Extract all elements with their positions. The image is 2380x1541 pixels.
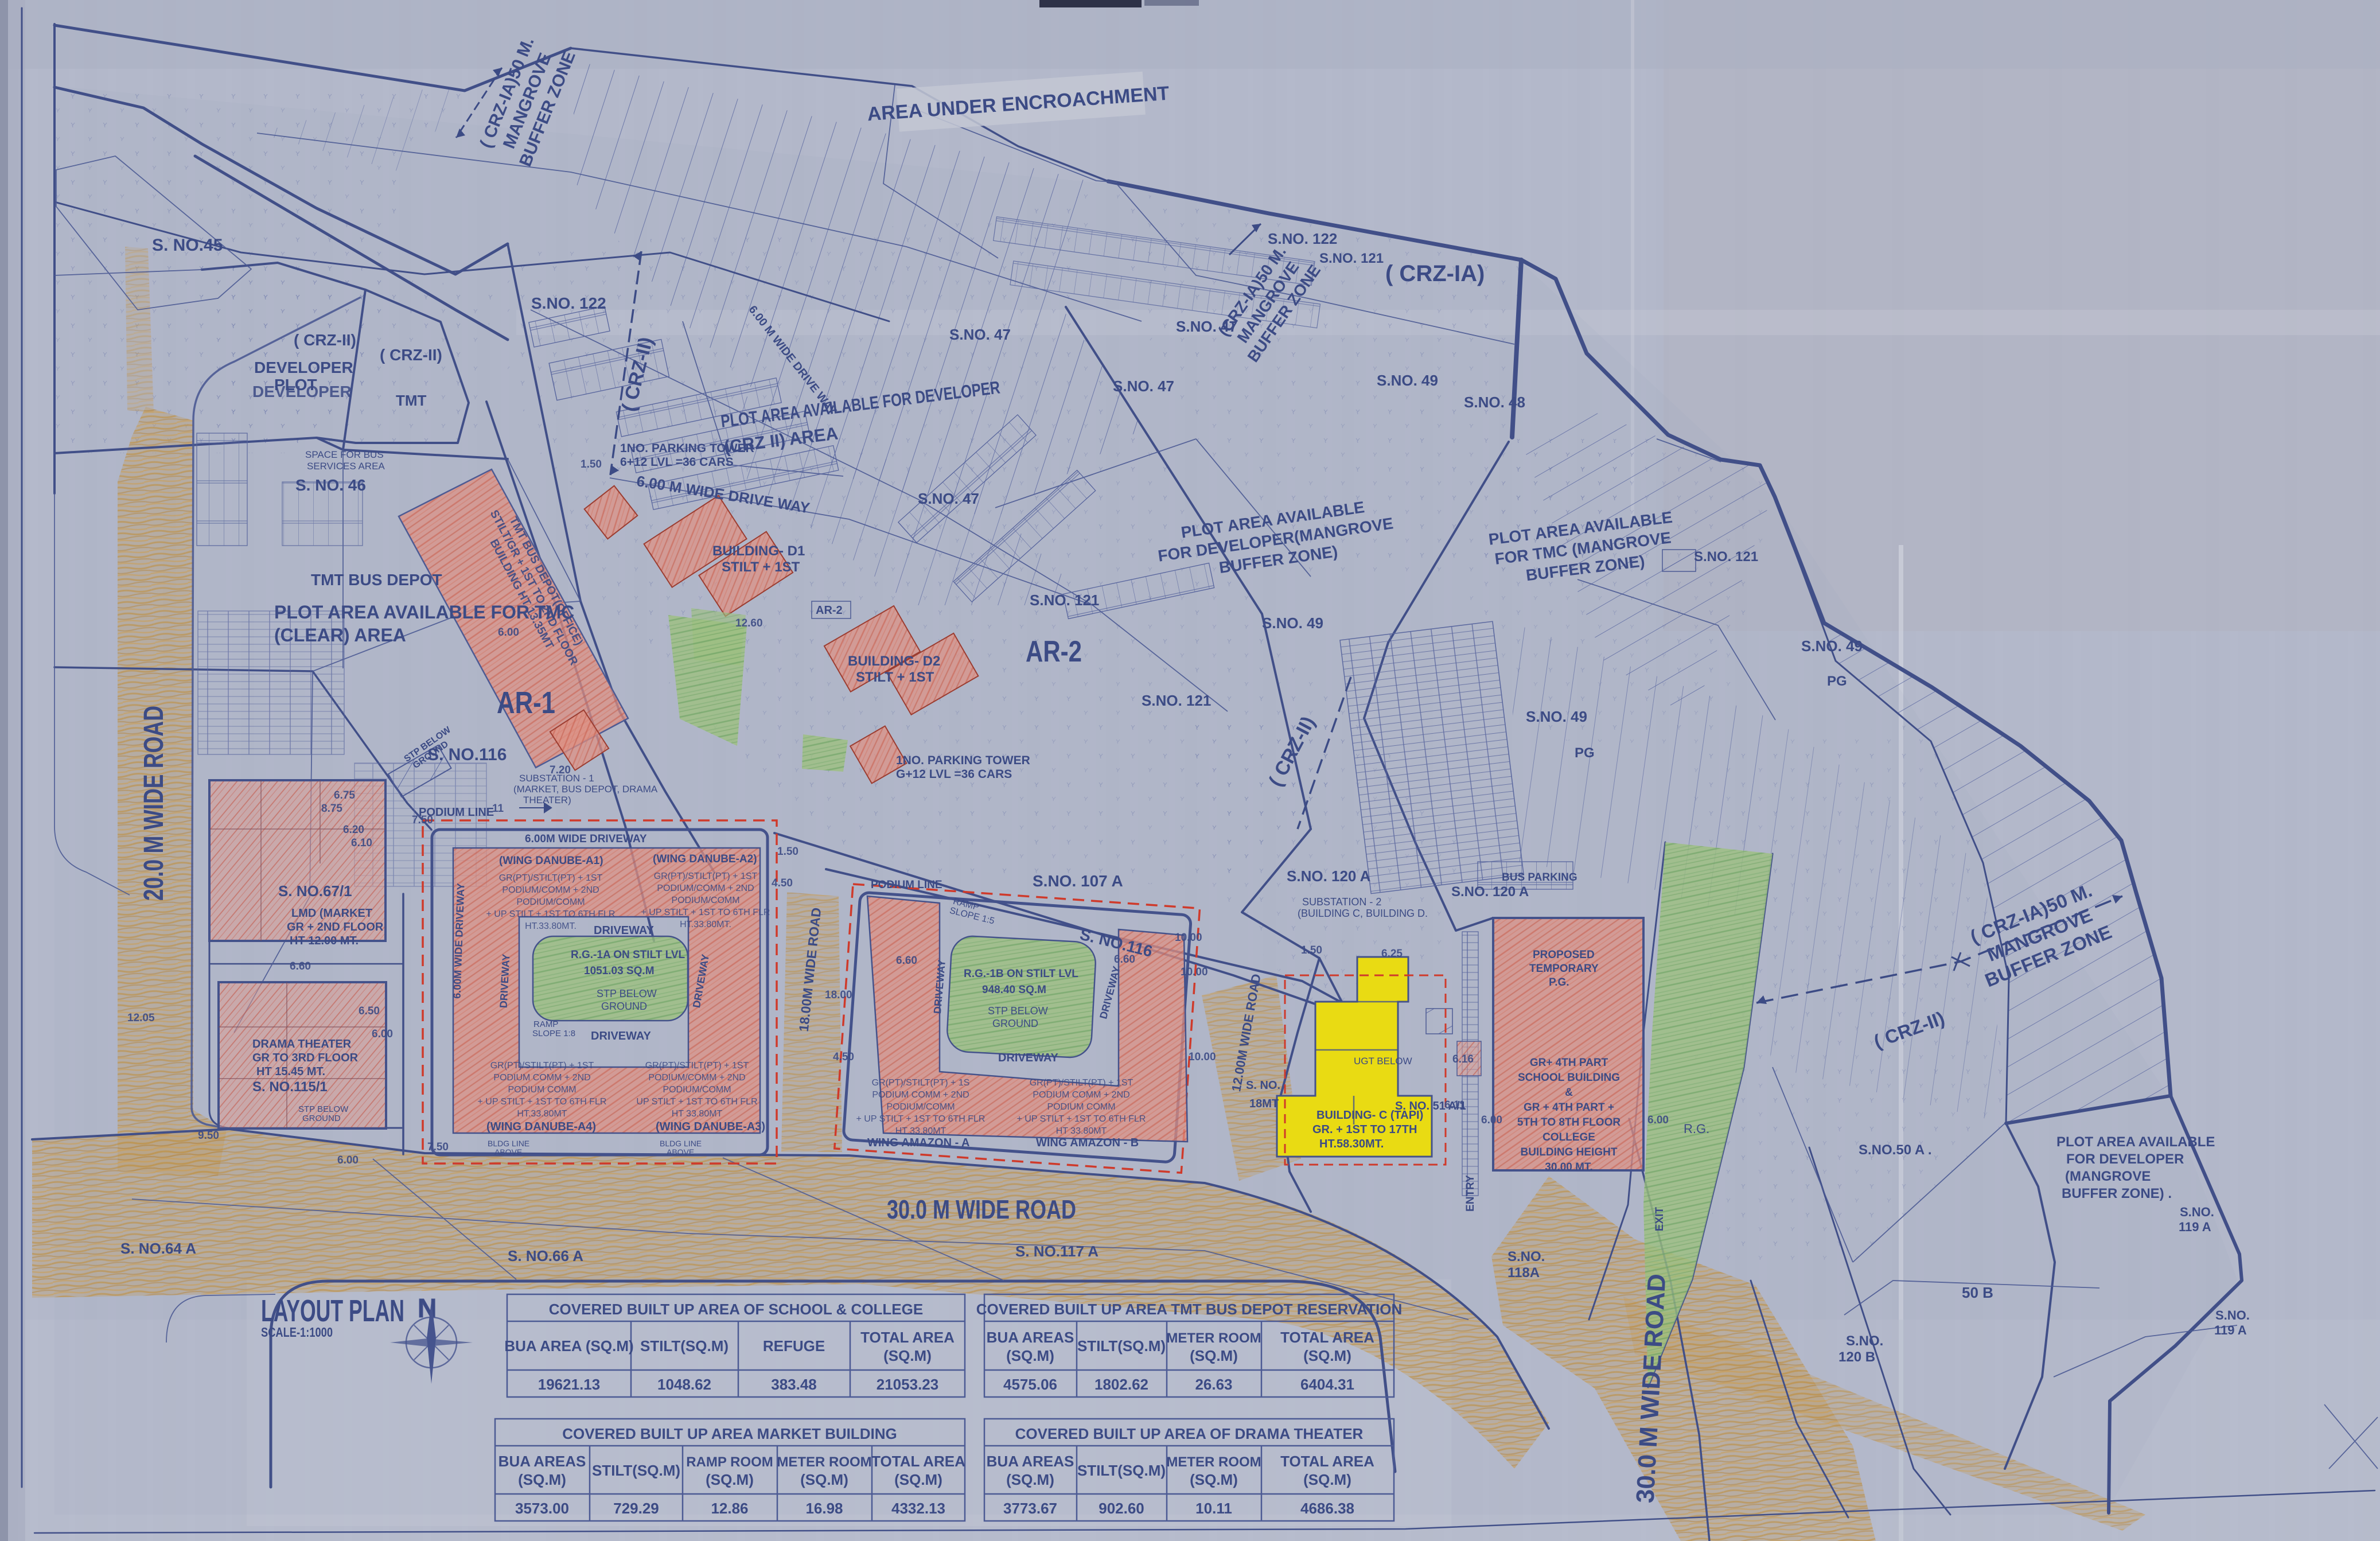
svg-text:PG: PG (1575, 745, 1595, 761)
svg-text:729.29: 729.29 (613, 1500, 659, 1517)
svg-text:PROPOSED: PROPOSED (1533, 949, 1595, 961)
svg-text:HT 33.80MT: HT 33.80MT (1056, 1126, 1107, 1136)
svg-text:( CRZ-II): ( CRZ-II) (380, 346, 442, 364)
svg-text:BUA AREAS: BUA AREAS (498, 1453, 586, 1470)
svg-text:+ UP STILT + 1ST TO 6TH FLR: + UP STILT + 1ST TO 6TH FLR (641, 908, 770, 917)
svg-text:HT 12.00 MT.: HT 12.00 MT. (290, 935, 359, 947)
svg-text:HT.58.30MT.: HT.58.30MT. (1319, 1138, 1384, 1150)
svg-text:1051.03 SQ.M: 1051.03 SQ.M (584, 965, 655, 977)
svg-text:COVERED BUILT UP AREA TMT BUS: COVERED BUILT UP AREA TMT BUS DEPOT RESE… (976, 1301, 1403, 1318)
svg-text:118A: 118A (1508, 1265, 1540, 1281)
svg-text:GROUND: GROUND (302, 1114, 341, 1123)
svg-text:S.NO. 122: S.NO. 122 (531, 294, 606, 312)
svg-text:9.50: 9.50 (198, 1130, 219, 1142)
svg-text:(WING DANUBE-A3): (WING DANUBE-A3) (656, 1120, 765, 1133)
svg-text:(SQ.M): (SQ.M) (894, 1471, 942, 1488)
svg-text:(SQ.M): (SQ.M) (706, 1471, 754, 1488)
svg-text:GR(PT)/STILT(PT) + 1ST: GR(PT)/STILT(PT) + 1ST (499, 873, 603, 883)
svg-text:BLDG LINE: BLDG LINE (660, 1139, 702, 1148)
svg-text:PODIUM COMM + 2ND: PODIUM COMM + 2ND (872, 1090, 969, 1100)
svg-text:S.NO. 49: S.NO. 49 (1801, 637, 1863, 655)
svg-text:METER ROOM: METER ROOM (777, 1454, 871, 1470)
svg-text:6.00: 6.00 (1647, 1114, 1669, 1126)
svg-text:5TH TO 8TH FLOOR: 5TH TO 8TH FLOOR (1517, 1116, 1621, 1128)
svg-text:METER ROOM: METER ROOM (1166, 1454, 1261, 1470)
svg-text:(SQ.M): (SQ.M) (800, 1471, 848, 1488)
svg-text:PODIUM/COMM + 2ND: PODIUM/COMM + 2ND (502, 885, 599, 895)
svg-text:119 A: 119 A (2179, 1220, 2211, 1234)
svg-text:(WING DANUBE-A2): (WING DANUBE-A2) (653, 853, 757, 865)
svg-text:(WING DANUBE-A1): (WING DANUBE-A1) (499, 855, 603, 867)
svg-text:AR-1: AR-1 (497, 686, 555, 720)
svg-text:TMT BUS DEPOT: TMT BUS DEPOT (311, 571, 442, 589)
svg-text:6.11: 6.11 (1444, 1099, 1465, 1111)
svg-text:RAMP ROOM: RAMP ROOM (686, 1454, 773, 1470)
svg-text:6.00M WIDE DRIVEWAY: 6.00M WIDE DRIVEWAY (525, 833, 647, 845)
svg-text:SLOPE 1:8: SLOPE 1:8 (532, 1029, 575, 1038)
svg-text:S.NO. 107 A: S.NO. 107 A (1033, 872, 1123, 890)
svg-text:1.50: 1.50 (777, 846, 798, 858)
svg-text:8.75: 8.75 (321, 803, 342, 815)
svg-text:S.NO. 48: S.NO. 48 (1464, 394, 1525, 411)
svg-text:(SQ.M): (SQ.M) (1006, 1347, 1054, 1364)
svg-text:S. NO.64 A: S. NO.64 A (120, 1240, 196, 1257)
svg-text:3573.00: 3573.00 (515, 1500, 569, 1517)
svg-text:(SQ.M): (SQ.M) (883, 1347, 932, 1364)
svg-text:(SQ.M): (SQ.M) (518, 1471, 566, 1488)
svg-text:SPACE FOR BUS: SPACE FOR BUS (305, 449, 384, 460)
svg-text:&: & (1565, 1087, 1573, 1099)
svg-text:PODIUM/COMM + 2ND: PODIUM/COMM + 2ND (657, 884, 754, 893)
svg-text:1.50: 1.50 (581, 458, 602, 470)
svg-text:THEATER): THEATER) (523, 795, 571, 805)
svg-text:4332.13: 4332.13 (891, 1500, 945, 1517)
svg-text:SERVICES AREA: SERVICES AREA (307, 461, 385, 472)
svg-text:(WING DANUBE-A4): (WING DANUBE-A4) (486, 1120, 596, 1133)
svg-text:STILT(SQ.M): STILT(SQ.M) (640, 1337, 729, 1355)
svg-text:50 B: 50 B (1962, 1284, 1993, 1301)
svg-text:1.50: 1.50 (1301, 944, 1322, 956)
svg-text:ENTRY: ENTRY (1464, 1175, 1477, 1212)
svg-text:6.60: 6.60 (896, 955, 917, 967)
svg-text:PODIUM/COMM: PODIUM/COMM (671, 896, 739, 905)
svg-text:(SQ.M): (SQ.M) (1303, 1347, 1351, 1364)
svg-text:1NO. PARKING TOWER: 1NO. PARKING TOWER (896, 754, 1030, 767)
svg-text:+ UP STILT + 1ST TO 6TH FLR: + UP STILT + 1ST TO 6TH FLR (486, 909, 616, 919)
svg-text:(CLEAR) AREA: (CLEAR) AREA (274, 625, 406, 645)
svg-text:21053.23: 21053.23 (877, 1376, 938, 1393)
svg-text:16.98: 16.98 (805, 1500, 843, 1517)
svg-text:S.NO. 121: S.NO. 121 (1694, 549, 1758, 565)
svg-text:R.G.: R.G. (1684, 1122, 1709, 1136)
svg-text:R.G.-1A ON STILT LVL: R.G.-1A ON STILT LVL (571, 949, 685, 961)
svg-text:BUA AREAS: BUA AREAS (987, 1453, 1074, 1470)
svg-text:TOTAL AREA: TOTAL AREA (1280, 1453, 1374, 1470)
svg-text:STP BELOW: STP BELOW (298, 1104, 349, 1114)
svg-text:STILT + 1ST: STILT + 1ST (856, 670, 934, 685)
svg-text:UGT BELOW: UGT BELOW (1354, 1056, 1412, 1067)
svg-text:HT.33.80MT: HT.33.80MT (517, 1109, 567, 1119)
svg-text:TMT: TMT (396, 392, 427, 409)
svg-text:PG: PG (1827, 674, 1847, 689)
svg-text:REFUGE: REFUGE (763, 1337, 825, 1355)
svg-text:S.NO. 47: S.NO. 47 (949, 326, 1011, 343)
svg-text:S.NO. 122: S.NO. 122 (1268, 230, 1337, 247)
svg-text:AR-2: AR-2 (816, 604, 843, 617)
svg-text:PODIUM COMM + 2ND: PODIUM COMM + 2ND (493, 1073, 590, 1083)
svg-text:BUILDING HEIGHT: BUILDING HEIGHT (1521, 1146, 1618, 1158)
svg-text:COVERED BUILT UP AREA OF DRAMA: COVERED BUILT UP AREA OF DRAMA THEATER (1015, 1425, 1364, 1442)
svg-text:TOTAL AREA: TOTAL AREA (871, 1453, 965, 1470)
svg-text:DRAMA THEATER: DRAMA THEATER (252, 1038, 352, 1050)
svg-text:DEVELOPER: DEVELOPER (254, 359, 353, 376)
svg-text:6.10: 6.10 (351, 837, 372, 849)
svg-text:BUILDING- D1: BUILDING- D1 (712, 543, 805, 559)
svg-text:BUS PARKING: BUS PARKING (1502, 871, 1577, 884)
svg-text:COLLEGE: COLLEGE (1542, 1131, 1595, 1143)
svg-text:20.0 M WIDE ROAD: 20.0 M WIDE ROAD (139, 706, 169, 901)
svg-text:PODIUM COMM: PODIUM COMM (1047, 1102, 1115, 1112)
svg-text:GR(PT)/STILT(PT) + 1ST: GR(PT)/STILT(PT) + 1ST (490, 1061, 594, 1071)
svg-text:R.G.-1B ON STILT LVL: R.G.-1B ON STILT LVL (964, 968, 1078, 980)
svg-text:STILT(SQ.M): STILT(SQ.M) (592, 1462, 680, 1479)
svg-text:S. NO.66 A: S. NO.66 A (508, 1247, 583, 1264)
svg-text:COVERED BUILT UP AREA OF SCHOO: COVERED BUILT UP AREA OF SCHOOL & COLLEG… (549, 1301, 923, 1318)
svg-text:SCHOOL BUILDING: SCHOOL BUILDING (1518, 1072, 1620, 1084)
svg-text:DRIVEWAY: DRIVEWAY (998, 1052, 1059, 1064)
svg-text:DRIVEWAY: DRIVEWAY (591, 1030, 652, 1042)
svg-text:902.60: 902.60 (1099, 1500, 1144, 1517)
svg-text:PODIUM COMM: PODIUM COMM (508, 1085, 576, 1095)
svg-text:STP BELOW: STP BELOW (597, 988, 657, 999)
svg-text:10.00: 10.00 (1189, 1051, 1216, 1063)
svg-text:GR + 4TH PART +: GR + 4TH PART + (1524, 1102, 1614, 1114)
svg-text:6.60: 6.60 (290, 960, 311, 972)
svg-text:(SQ.M): (SQ.M) (1190, 1471, 1238, 1488)
svg-text:6.00: 6.00 (1481, 1114, 1502, 1126)
svg-text:GROUND: GROUND (992, 1018, 1038, 1029)
svg-text:30.0 M WIDE ROAD: 30.0 M WIDE ROAD (887, 1194, 1076, 1224)
svg-text:S.NO.50 A .: S.NO.50 A . (1859, 1142, 1932, 1158)
svg-text:4.50: 4.50 (772, 877, 793, 889)
svg-text:(BUILDING C, BUILDING D.: (BUILDING C, BUILDING D. (1298, 908, 1428, 919)
svg-text:10.00: 10.00 (1181, 966, 1208, 978)
svg-text:383.48: 383.48 (771, 1376, 817, 1393)
svg-text:11: 11 (492, 803, 504, 815)
svg-text:+ UP STILT + 1ST TO 6TH FLR: + UP STILT + 1ST TO 6TH FLR (856, 1114, 986, 1124)
svg-text:7.20: 7.20 (550, 764, 571, 776)
svg-text:S.NO.: S.NO. (2215, 1308, 2250, 1322)
svg-text:HT.33.80MT.: HT.33.80MT. (525, 921, 577, 931)
svg-text:6.60: 6.60 (1114, 954, 1135, 966)
svg-text:STILT(SQ.M): STILT(SQ.M) (1077, 1337, 1166, 1355)
svg-text:UP STILT + 1ST TO 6TH FLR: UP STILT + 1ST TO 6TH FLR (636, 1097, 757, 1107)
svg-text:GR. + 1ST TO 17TH: GR. + 1ST TO 17TH (1312, 1123, 1417, 1136)
svg-text:DEVELOPER: DEVELOPER (252, 383, 352, 400)
svg-text:119 A: 119 A (2214, 1323, 2247, 1337)
svg-text:+ UP STILT + 1ST TO 6TH FLR: + UP STILT + 1ST TO 6TH FLR (478, 1097, 607, 1107)
svg-text:GR+ 4TH PART: GR+ 4TH PART (1530, 1057, 1608, 1069)
svg-text:GR(PT)/STILT(PT) + 1ST: GR(PT)/STILT(PT) + 1ST (645, 1061, 749, 1071)
svg-text:METER ROOM: METER ROOM (1166, 1330, 1261, 1346)
svg-text:TEMPORARY: TEMPORARY (1529, 963, 1599, 975)
svg-text:BLDG LINE: BLDG LINE (488, 1139, 529, 1148)
svg-text:RAMP: RAMP (533, 1019, 558, 1029)
svg-text:ABOVE: ABOVE (667, 1147, 694, 1157)
svg-text:PLOT AREA AVAILABLE: PLOT AREA AVAILABLE (2056, 1134, 2215, 1150)
svg-text:S.NO. 47: S.NO. 47 (1113, 378, 1174, 395)
svg-text:LAYOUT PLAN: LAYOUT PLAN (261, 1294, 404, 1328)
svg-text:30.00 MT.: 30.00 MT. (1545, 1161, 1592, 1173)
svg-text:STP BELOW: STP BELOW (988, 1005, 1048, 1017)
svg-text:6.00: 6.00 (498, 626, 519, 639)
svg-text:6404.31: 6404.31 (1300, 1376, 1354, 1393)
svg-text:SUBSTATION - 2: SUBSTATION - 2 (1302, 896, 1381, 908)
svg-text:7.50: 7.50 (412, 814, 433, 826)
svg-text:S.NO. 121: S.NO. 121 (1030, 592, 1099, 609)
svg-text:4.50: 4.50 (833, 1051, 854, 1063)
svg-text:GR TO 3RD FLOOR: GR TO 3RD FLOOR (252, 1052, 359, 1064)
svg-text:S.NO.: S.NO. (1508, 1249, 1545, 1264)
svg-text:ABOVE: ABOVE (494, 1147, 522, 1157)
svg-text:6.20: 6.20 (343, 824, 364, 836)
svg-text:PODIUM COMM + 2ND: PODIUM COMM + 2ND (1033, 1090, 1129, 1100)
svg-text:19621.13: 19621.13 (538, 1376, 600, 1393)
svg-text:10.11: 10.11 (1195, 1500, 1232, 1517)
svg-text:948.40 SQ.M: 948.40 SQ.M (982, 984, 1046, 996)
svg-text:S.NO.: S.NO. (2180, 1205, 2214, 1219)
svg-text:BUA AREA (SQ.M): BUA AREA (SQ.M) (504, 1337, 633, 1355)
svg-text:G+12 LVL =36 CARS: G+12 LVL =36 CARS (896, 768, 1012, 781)
svg-text:GR + 2ND FLOOR: GR + 2ND FLOOR (287, 921, 384, 933)
svg-text:SCALE-1:1000: SCALE-1:1000 (261, 1325, 333, 1340)
svg-text:120 B: 120 B (1838, 1349, 1875, 1365)
svg-text:10.00: 10.00 (1175, 932, 1202, 944)
svg-text:6.00: 6.00 (372, 1028, 393, 1040)
svg-text:AR-2: AR-2 (1026, 635, 1082, 668)
svg-text:STILT + 1ST: STILT + 1ST (722, 559, 800, 575)
svg-text:DRIVEWAY: DRIVEWAY (594, 924, 655, 937)
svg-text:S.NO. 121: S.NO. 121 (1319, 251, 1384, 266)
svg-text:TOTAL AREA: TOTAL AREA (1280, 1329, 1374, 1346)
svg-text:PODIUM LINE: PODIUM LINE (871, 879, 942, 891)
svg-text:PODIUM/COMM: PODIUM/COMM (663, 1085, 731, 1095)
svg-text:HT.33.80MT.: HT.33.80MT. (680, 920, 731, 929)
svg-text:(SQ.M): (SQ.M) (1190, 1347, 1238, 1364)
svg-text:GROUND: GROUND (601, 1001, 647, 1012)
svg-text:6.50: 6.50 (359, 1005, 380, 1017)
svg-text:4686.38: 4686.38 (1300, 1500, 1354, 1517)
svg-text:STILT(SQ.M): STILT(SQ.M) (1077, 1462, 1166, 1479)
svg-text:( CRZ-II): ( CRZ-II) (294, 331, 356, 349)
svg-text:BUA AREAS: BUA AREAS (987, 1329, 1074, 1346)
svg-text:FOR DEVELOPER: FOR DEVELOPER (2066, 1151, 2184, 1167)
svg-text:S.NO. 49: S.NO. 49 (1377, 372, 1438, 389)
svg-text:GR(PT)/STILT(PT) + 1ST: GR(PT)/STILT(PT) + 1ST (1030, 1078, 1133, 1088)
svg-text:S. NO. 46: S. NO. 46 (295, 476, 366, 494)
svg-text:BUFFER ZONE) .: BUFFER ZONE) . (2062, 1186, 2172, 1201)
svg-text:S.NO.: S.NO. (1846, 1333, 1883, 1349)
svg-text:S.NO. 121: S.NO. 121 (1142, 692, 1211, 709)
svg-text:HT 33.80MT: HT 33.80MT (672, 1109, 723, 1119)
svg-text:S.NO. 49: S.NO. 49 (1526, 708, 1587, 725)
svg-text:6+12 LVL =36 CARS: 6+12 LVL =36 CARS (620, 456, 734, 469)
svg-text:(MANGROVE: (MANGROVE (2065, 1169, 2151, 1184)
svg-text:12.86: 12.86 (711, 1500, 748, 1517)
svg-text:12.05: 12.05 (127, 1012, 155, 1024)
svg-text:EXIT: EXIT (1654, 1207, 1666, 1231)
svg-text:BUILDING- D2: BUILDING- D2 (848, 653, 940, 669)
svg-text:1048.62: 1048.62 (657, 1376, 711, 1393)
svg-text:S. NO.117 A: S. NO.117 A (1015, 1243, 1099, 1260)
svg-text:6.25: 6.25 (1381, 948, 1403, 960)
svg-text:PODIUM/COMM: PODIUM/COMM (886, 1102, 955, 1112)
svg-text:S.NO. 120 A: S.NO. 120 A (1287, 867, 1371, 885)
svg-text:S. NO.67/1: S. NO.67/1 (278, 882, 352, 900)
svg-text:6.00: 6.00 (337, 1154, 359, 1166)
svg-text:4575.06: 4575.06 (1003, 1376, 1057, 1393)
svg-text:6.75: 6.75 (334, 789, 355, 801)
svg-text:COVERED BUILT UP AREA MARKET B: COVERED BUILT UP AREA MARKET BUILDING (562, 1425, 897, 1442)
svg-text:1802.62: 1802.62 (1094, 1376, 1148, 1393)
svg-text:TOTAL AREA: TOTAL AREA (860, 1329, 955, 1346)
svg-text:N: N (418, 1293, 437, 1323)
svg-text:P.G.: P.G. (1549, 976, 1569, 989)
svg-text:( CRZ-IA): ( CRZ-IA) (1385, 261, 1485, 286)
svg-text:PODIUM/COMM + 2ND: PODIUM/COMM + 2ND (648, 1073, 745, 1083)
svg-text:GR(PT)/STILT(PT) + 1ST: GR(PT)/STILT(PT) + 1ST (654, 871, 758, 881)
svg-text:(SQ.M): (SQ.M) (1303, 1471, 1351, 1488)
svg-text:S. NO.: S. NO. (1246, 1079, 1280, 1092)
svg-text:HT 33.80MT: HT 33.80MT (895, 1126, 946, 1136)
svg-text:S.NO. 120 A: S.NO. 120 A (1451, 884, 1529, 900)
svg-text:+ UP STILT + 1ST TO 6TH FLR: + UP STILT + 1ST TO 6TH FLR (1017, 1114, 1146, 1124)
svg-text:S.NO. 47: S.NO. 47 (918, 490, 979, 507)
svg-text:12.60: 12.60 (735, 617, 763, 629)
svg-text:LMD (MARKET: LMD (MARKET (291, 907, 372, 920)
svg-text:PODIUM/COMM: PODIUM/COMM (516, 897, 585, 907)
svg-text:7.50: 7.50 (427, 1141, 449, 1153)
svg-text:18MT: 18MT (1249, 1098, 1279, 1110)
svg-text:S.NO. 49: S.NO. 49 (1262, 614, 1323, 632)
svg-text:S. NO.45: S. NO.45 (152, 236, 223, 255)
svg-text:26.63: 26.63 (1195, 1376, 1232, 1393)
svg-text:S. NO.115/1: S. NO.115/1 (252, 1079, 328, 1095)
svg-text:18.00: 18.00 (825, 989, 852, 1001)
svg-text:HT 15.45 MT.: HT 15.45 MT. (256, 1065, 325, 1078)
svg-text:(MARKET, BUS DEPOT, DRAMA: (MARKET, BUS DEPOT, DRAMA (513, 784, 658, 795)
svg-text:WING AMAZON - A: WING AMAZON - A (867, 1137, 970, 1149)
svg-text:3773.67: 3773.67 (1003, 1500, 1057, 1517)
svg-text:GR(PT)/STILT(PT) + 1S: GR(PT)/STILT(PT) + 1S (872, 1078, 970, 1088)
svg-text:WING AMAZON - B: WING AMAZON - B (1036, 1137, 1139, 1149)
svg-text:(SQ.M): (SQ.M) (1006, 1471, 1054, 1488)
svg-text:6.16: 6.16 (1452, 1053, 1474, 1065)
